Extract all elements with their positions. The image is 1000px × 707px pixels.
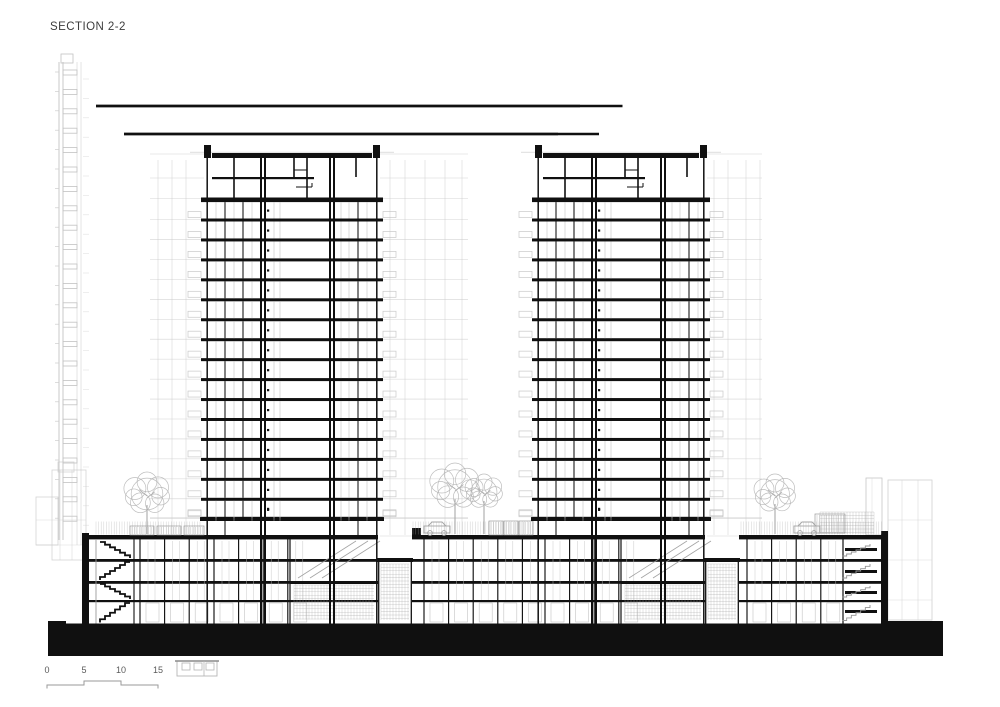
tree (124, 472, 170, 534)
drawing-title: SECTION 2-2 (50, 21, 126, 33)
architectural-section-canvas: SECTION 2-2 0 5 10 15 (0, 0, 1000, 707)
ground-mass (48, 621, 943, 656)
scale-bar-graphic (47, 681, 158, 689)
car (794, 522, 820, 535)
podium-section (739, 531, 888, 624)
scale-label-10: 10 (116, 665, 126, 675)
left-background-buildings (36, 462, 86, 560)
podium-section (377, 558, 413, 624)
podium-section (537, 535, 711, 624)
scale-label-15: 15 (153, 665, 163, 675)
section-drawing (0, 0, 1000, 707)
scale-label-5: 5 (81, 665, 86, 675)
podium-section (82, 106, 623, 624)
car (424, 522, 450, 535)
podium-section (704, 558, 740, 624)
podium-section (206, 535, 380, 624)
tree (430, 463, 480, 534)
scale-label-0: 0 (44, 665, 49, 675)
legend-icon (175, 661, 219, 676)
left-tower (188, 145, 396, 624)
podium-section (412, 528, 541, 624)
podium (82, 106, 888, 624)
